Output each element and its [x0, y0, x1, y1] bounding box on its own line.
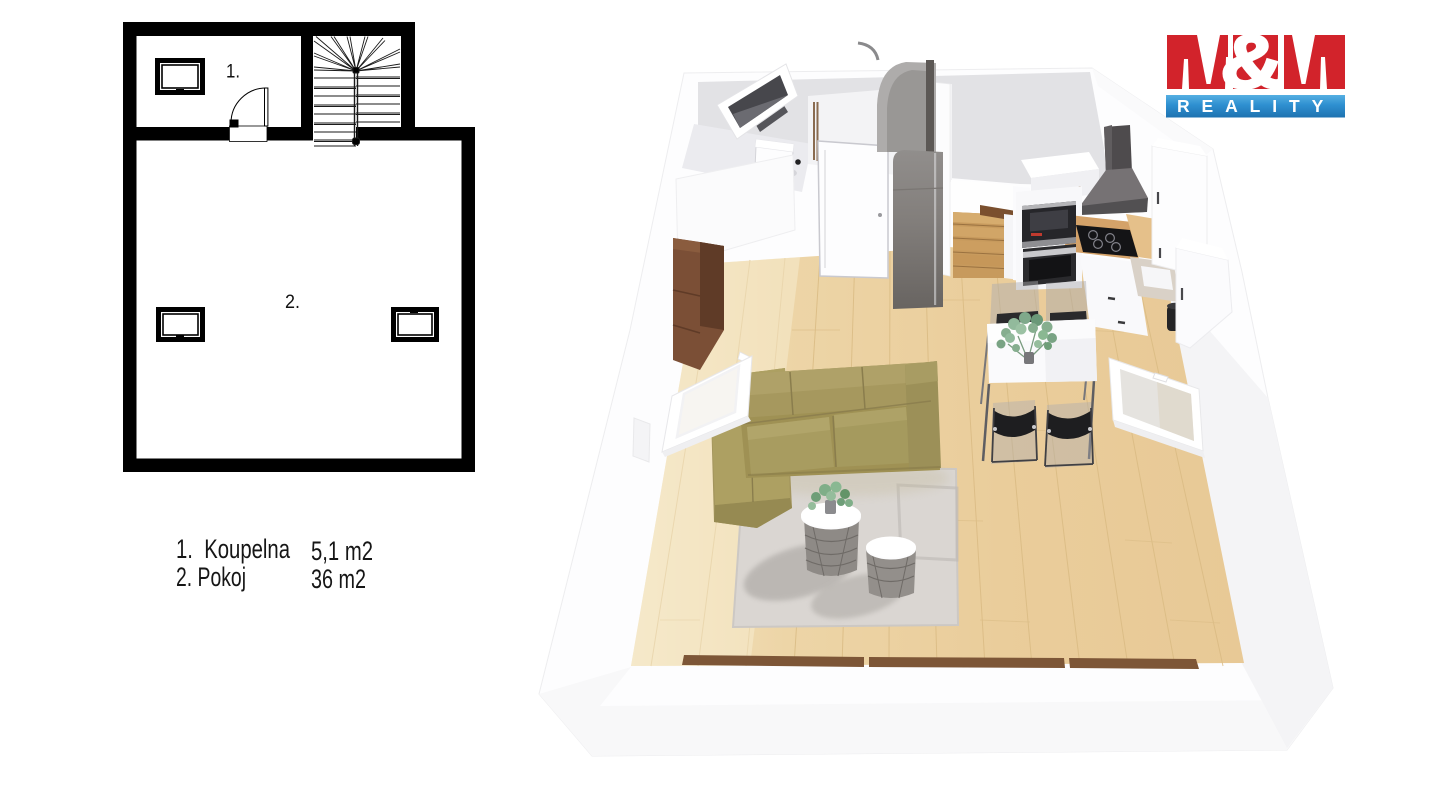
svg-text:1.: 1.: [226, 62, 240, 83]
svg-text:REALITY: REALITY: [1177, 96, 1335, 116]
svg-text:36 m2: 36 m2: [311, 564, 366, 594]
svg-text:1. Koupelna: 1. Koupelna: [176, 534, 291, 564]
svg-text:&: &: [1220, 20, 1284, 105]
svg-text:5,1 m2: 5,1 m2: [311, 536, 373, 566]
svg-text:2. Pokoj: 2. Pokoj: [176, 562, 246, 592]
svg-text:2.: 2.: [285, 292, 300, 313]
